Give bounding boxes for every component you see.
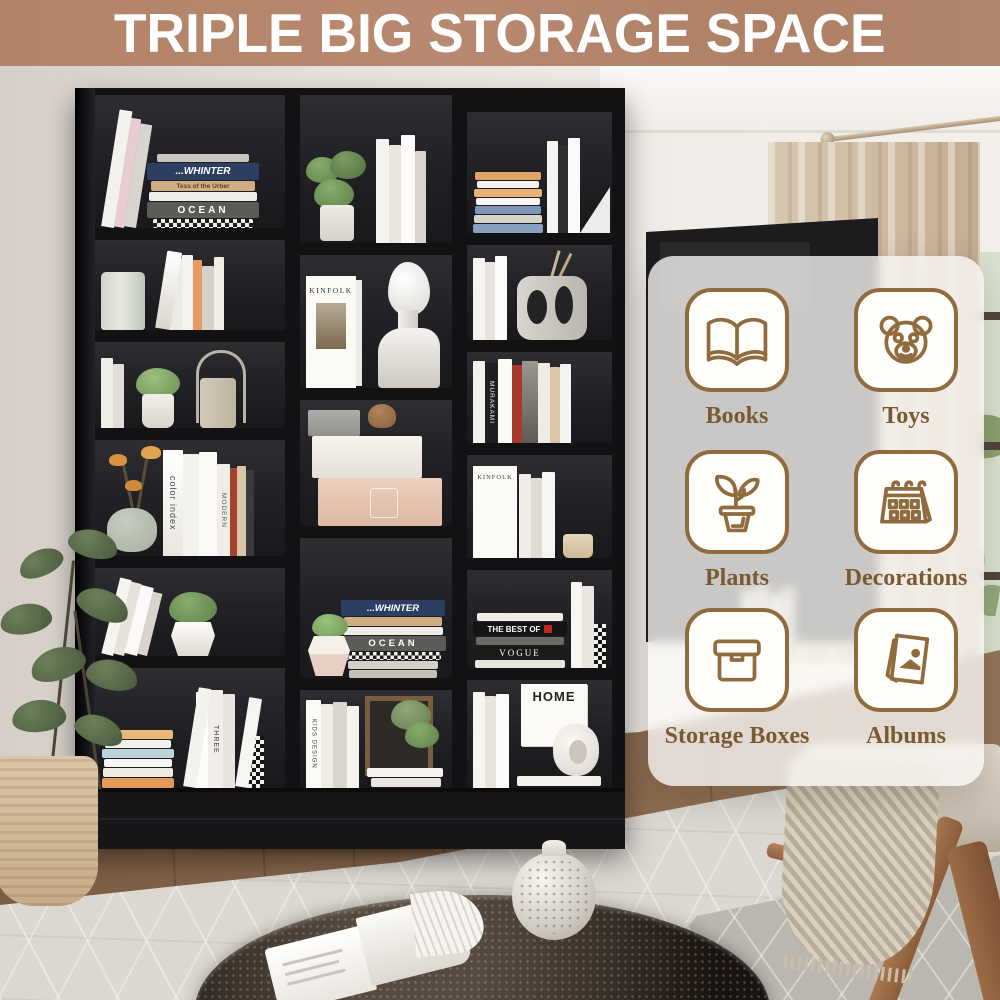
potted-plant-icon	[702, 467, 772, 537]
air-plant	[128, 368, 184, 428]
feature-toys: Toys	[821, 288, 991, 430]
feature-books: Books	[652, 288, 822, 430]
feature-label-decorations: Decorations	[845, 565, 968, 592]
book-spine-tess: Tess of the Urber	[177, 183, 230, 190]
bookcase-base	[75, 788, 625, 849]
home-magazine-and-vase: HOME	[511, 684, 606, 788]
shelf-cell	[300, 95, 452, 243]
storage-box-icon	[702, 625, 772, 695]
headline-banner: TRIPLE BIG STORAGE SPACE	[0, 0, 1000, 66]
shelf-cell	[467, 112, 612, 233]
book-spine-best-of: THE BEST OF	[488, 625, 541, 634]
product-image: ...WHINTER Tess of the Urber OCEAN	[0, 0, 1000, 1000]
sculptural-vase	[513, 252, 591, 340]
candle-cup	[563, 534, 593, 558]
magazine-title-kinfolk-2: KINFOLK	[477, 474, 513, 558]
shelf-cell: MURAKAMI	[467, 352, 612, 443]
book-spine-modern: MODERN	[220, 493, 227, 528]
kinfolk-magazine-2: KINFOLK	[473, 466, 519, 558]
book-spine-ocean-2: OCEAN	[368, 638, 417, 649]
white-bookend	[580, 187, 610, 233]
book-spine-whinter: ...WHINTER	[176, 166, 231, 177]
storage-boxes-icon-card	[685, 608, 789, 712]
feature-decorations: Decorations	[821, 450, 991, 592]
shelf-cell: KIDS DESIGN	[300, 690, 452, 788]
woven-planter	[0, 756, 98, 906]
shelf-cell: KINFOLK	[467, 455, 612, 558]
teddy-bear-icon	[871, 305, 941, 375]
feature-label-books: Books	[706, 403, 769, 430]
toys-icon-card	[854, 288, 958, 392]
frame-and-plant	[361, 696, 445, 788]
photo-album-icon	[871, 625, 941, 695]
book-spine-kids-design: KIDS DESIGN	[311, 719, 317, 769]
book-spine-whinter-2: ...WHINTER	[367, 603, 419, 614]
kinfolk-magazine: KINFOLK	[306, 276, 364, 388]
arch-lantern-lamp	[192, 350, 244, 428]
feature-storage-boxes: Storage Boxes	[642, 608, 832, 750]
checker-bookend	[594, 624, 606, 668]
book-spine-ocean: OCEAN	[177, 205, 228, 216]
desk-calendar-icon	[871, 467, 941, 537]
book-spine-murakami: MURAKAMI	[488, 381, 495, 424]
succulent-pot	[306, 614, 336, 678]
albums-icon-card	[854, 608, 958, 712]
textured-sphere-vase	[512, 852, 596, 940]
plants-icon-card	[685, 450, 789, 554]
shelf-cell: KINFOLK	[300, 255, 452, 388]
feature-label-albums: Albums	[866, 723, 946, 750]
shelf-cell: HOME	[467, 680, 612, 788]
open-book-icon	[702, 305, 772, 375]
shelf-cell: THE BEST OF VOGUE	[467, 570, 612, 668]
feature-plants: Plants	[652, 450, 822, 592]
feature-label-plants: Plants	[705, 565, 769, 592]
shelf-cell: ...WHINTER Tess of the Urber OCEAN	[95, 95, 285, 228]
shelf-cell	[95, 240, 285, 330]
book-spine-vogue: VOGUE	[499, 648, 541, 658]
shelf-cell	[300, 400, 452, 526]
magazine-title-kinfolk: KINFOLK	[309, 286, 352, 295]
shelf-cell: ...WHINTER OCEAN	[300, 538, 452, 678]
ceramic-vase	[101, 272, 145, 330]
floor-plant	[0, 520, 180, 780]
headline-title: TRIPLE BIG STORAGE SPACE	[114, 1, 886, 65]
books-icon-card	[685, 288, 789, 392]
david-bust-sculpture	[372, 262, 444, 388]
feature-label-toys: Toys	[882, 403, 929, 430]
feature-albums: Albums	[821, 608, 991, 750]
book-spine-three: THREE	[212, 725, 219, 754]
pothos-plant	[306, 151, 370, 243]
feature-label-storage-boxes: Storage Boxes	[665, 723, 810, 750]
shelf-cell	[467, 245, 612, 340]
shelf-cell	[95, 342, 285, 428]
decorations-icon-card	[854, 450, 958, 554]
storage-box-stack	[306, 404, 446, 526]
